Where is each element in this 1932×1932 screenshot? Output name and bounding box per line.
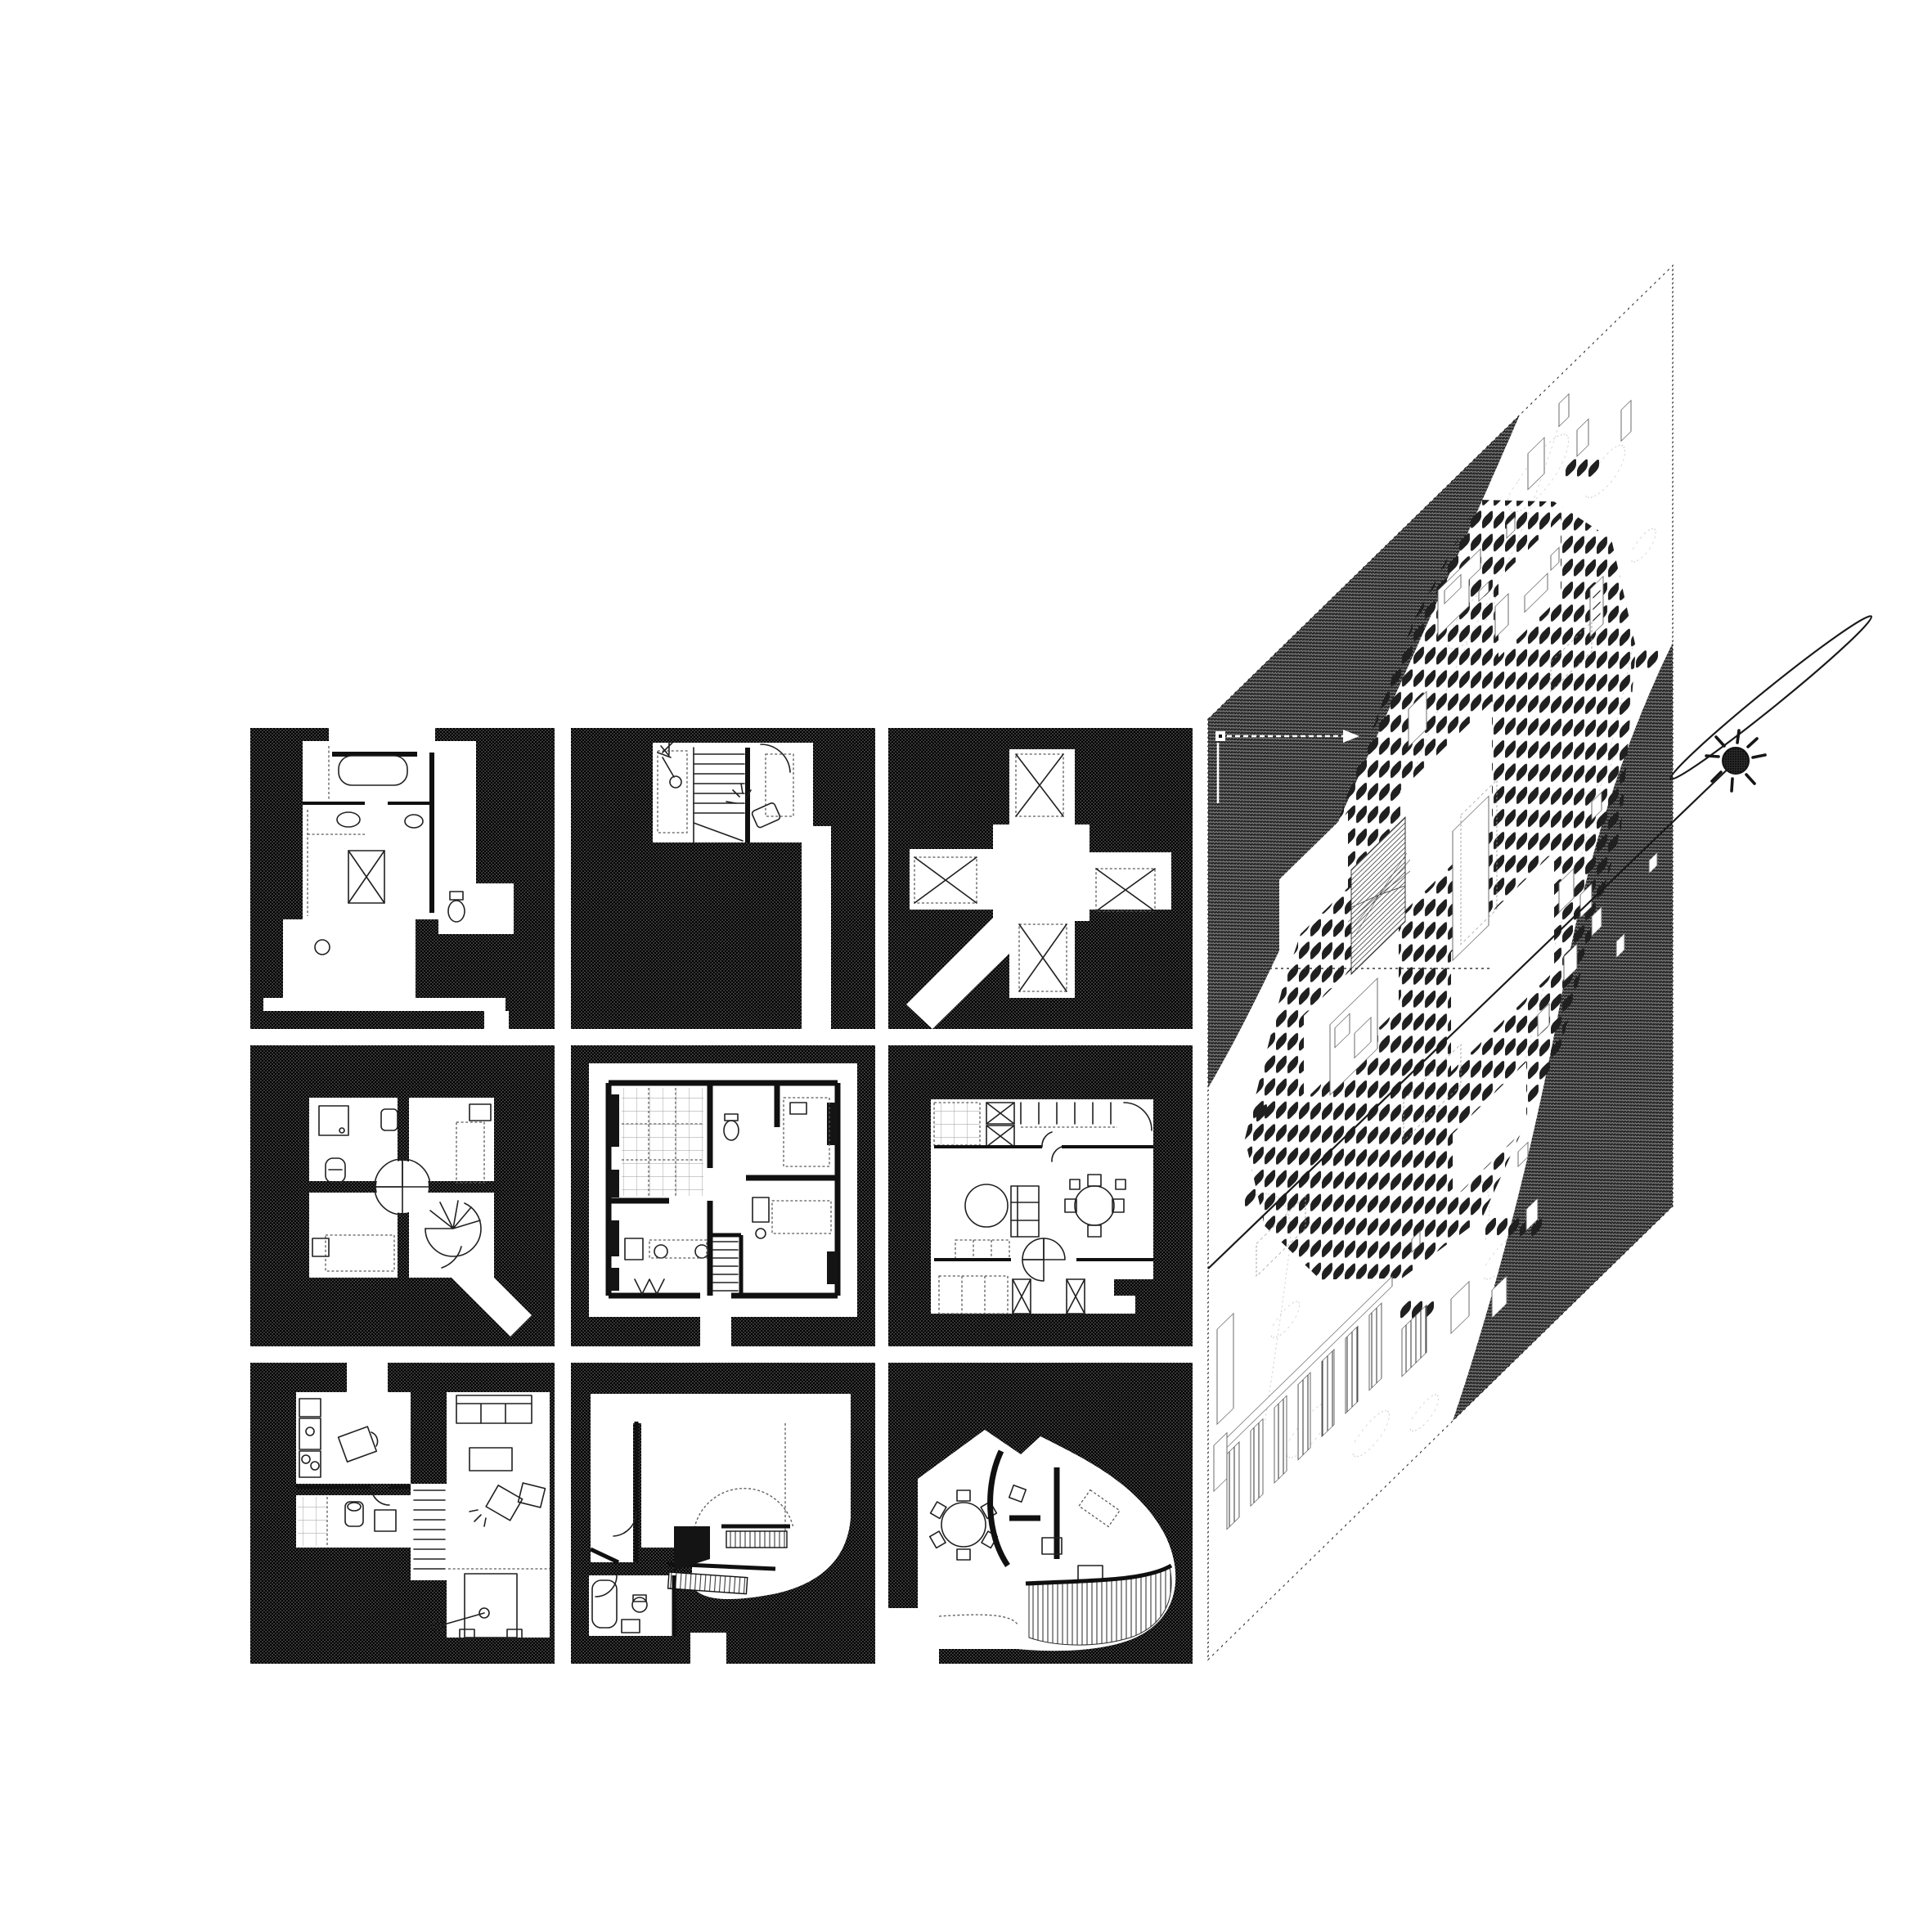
tile-plan-dining-apartment xyxy=(888,1045,1193,1346)
tile-plan-stair-room xyxy=(571,728,875,1029)
axonometric-site-plane xyxy=(1207,264,1674,1661)
sun-icon xyxy=(1706,730,1765,791)
tile-plan-bath-suite xyxy=(250,728,555,1029)
tile-plan-curved-hall xyxy=(571,1363,875,1664)
tile-plan-thick-wall-apartment xyxy=(571,1045,875,1346)
tile-plan-cruciform xyxy=(888,728,1193,1029)
tile-plan-organic-studio xyxy=(888,1363,1193,1664)
tile-plan-pinwheel-rooms xyxy=(250,1045,555,1346)
tile-plan-duplex-living xyxy=(250,1363,555,1664)
drawing-canvas xyxy=(0,0,1932,1932)
